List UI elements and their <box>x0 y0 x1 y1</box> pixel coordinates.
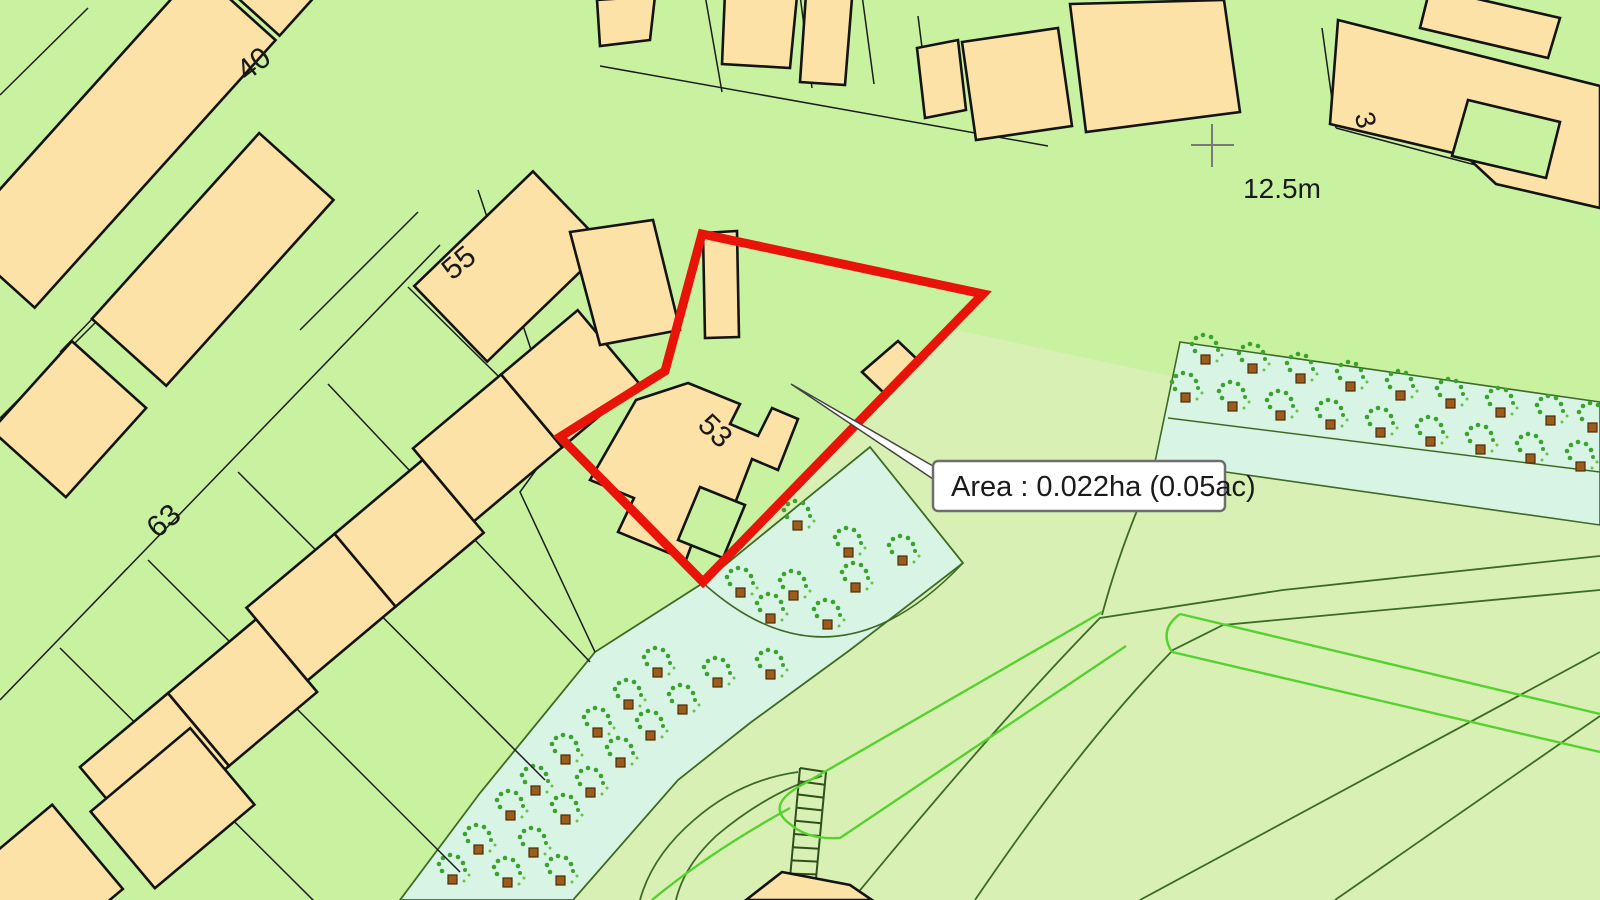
garage-in-plot <box>703 231 739 338</box>
building-top-5 <box>962 28 1072 140</box>
map-canvas: 40 55 53 63 3 12.5m Area : 0.022ha (0.05… <box>0 0 1600 900</box>
building-top-4 <box>917 40 966 118</box>
building-junction-island <box>1070 0 1240 132</box>
building-top-2 <box>722 0 797 68</box>
callout-text: Area : 0.022ha (0.05ac) <box>951 471 1256 503</box>
site-plan-svg: 40 55 53 63 3 12.5m Area : 0.022ha (0.05… <box>0 0 1600 900</box>
building-top-3 <box>800 0 852 85</box>
label-spot-height: 12.5m <box>1243 173 1321 204</box>
building-top-1 <box>597 0 655 46</box>
